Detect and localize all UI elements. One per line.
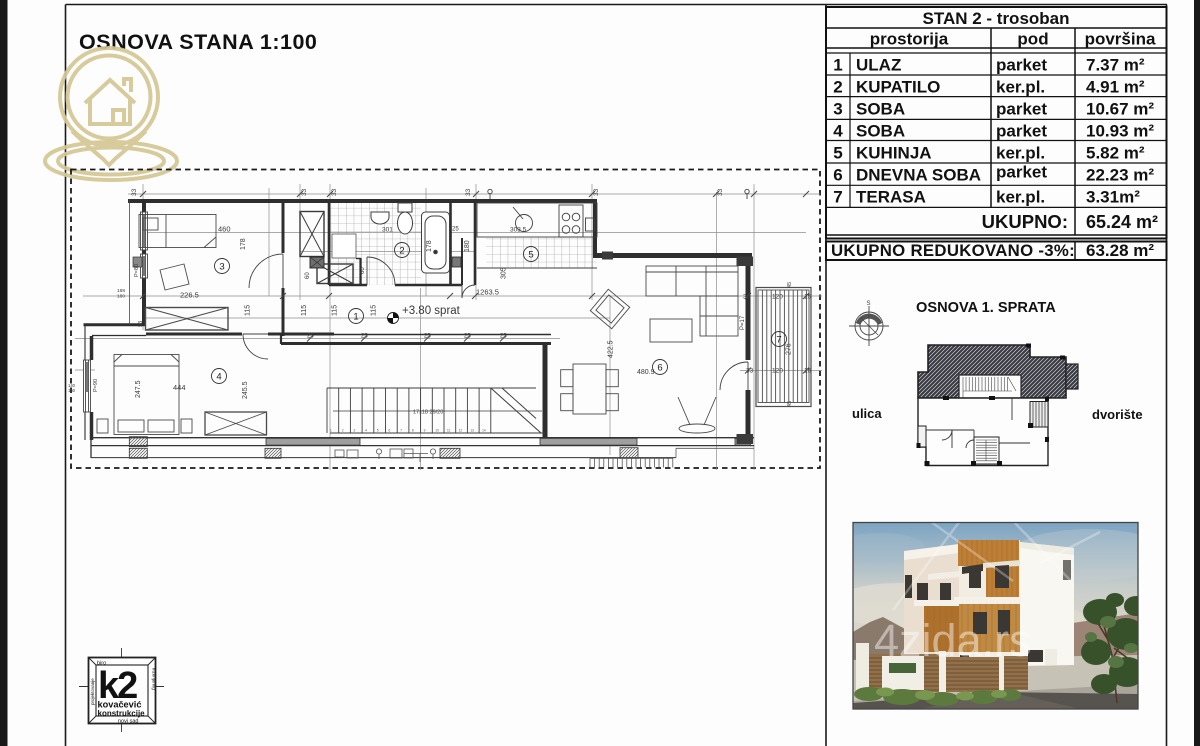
- svg-text:+3.80 sprat: +3.80 sprat: [402, 305, 461, 317]
- svg-text:60: 60: [360, 267, 366, 274]
- svg-text:P=80: P=80: [134, 264, 140, 277]
- svg-text:33: 33: [593, 188, 600, 196]
- svg-text:480.9: 480.9: [637, 369, 655, 376]
- svg-text:SOBA: SOBA: [856, 122, 905, 141]
- svg-text:422.5: 422.5: [608, 340, 615, 358]
- svg-text:33: 33: [131, 188, 138, 196]
- svg-text:25: 25: [464, 334, 471, 340]
- svg-text:parket: parket: [996, 100, 1047, 119]
- svg-text:DNEVNA SOBA: DNEVNA SOBA: [856, 166, 981, 185]
- svg-text:KUHINJA: KUHINJA: [856, 144, 932, 163]
- svg-text:115: 115: [332, 305, 339, 316]
- svg-text:P=17: P=17: [740, 315, 746, 330]
- svg-text:4: 4: [365, 429, 367, 433]
- svg-text:120: 120: [772, 368, 783, 375]
- svg-text:parket: parket: [996, 56, 1047, 75]
- svg-text:12: 12: [459, 429, 463, 433]
- svg-text:33: 33: [465, 188, 472, 196]
- svg-text:S: S: [867, 301, 871, 307]
- svg-text:1: 1: [833, 56, 842, 75]
- svg-text:5: 5: [377, 429, 379, 433]
- svg-text:kovačević: kovačević: [98, 700, 142, 710]
- svg-text:dvorište: dvorište: [1092, 407, 1143, 422]
- svg-text:UKUPNO REDUKOVANO -3%:: UKUPNO REDUKOVANO -3%:: [831, 241, 1075, 260]
- svg-text:305: 305: [501, 267, 508, 279]
- svg-text:2: 2: [399, 246, 404, 257]
- svg-text:ker.pl.: ker.pl.: [996, 144, 1045, 163]
- svg-text:parket: parket: [996, 163, 1047, 182]
- svg-text:7: 7: [833, 188, 842, 207]
- svg-text:inženjering: inženjering: [152, 668, 157, 690]
- svg-text:25: 25: [307, 334, 314, 340]
- svg-text:STAN 2 - trosoban: STAN 2 - trosoban: [922, 9, 1069, 28]
- svg-text:33: 33: [746, 368, 754, 375]
- svg-text:ulica: ulica: [852, 406, 882, 421]
- svg-text:konstrukcije: konstrukcije: [98, 709, 146, 718]
- svg-text:4: 4: [833, 122, 843, 141]
- svg-text:226.5: 226.5: [180, 291, 199, 300]
- svg-text:25: 25: [452, 227, 459, 233]
- svg-text:60: 60: [305, 272, 311, 279]
- svg-text:4.91 m²: 4.91 m²: [1086, 78, 1145, 97]
- svg-text:4zida.rs: 4zida.rs: [874, 615, 1032, 666]
- svg-text:25: 25: [500, 334, 507, 340]
- svg-text:6: 6: [389, 429, 391, 433]
- svg-text:SOBA: SOBA: [856, 100, 905, 119]
- svg-text:9: 9: [424, 429, 426, 433]
- svg-text:7: 7: [400, 429, 402, 433]
- svg-text:188: 188: [117, 288, 125, 294]
- svg-text:15: 15: [804, 294, 812, 301]
- svg-text:115: 115: [301, 305, 308, 316]
- svg-text:ker.pl.: ker.pl.: [996, 188, 1045, 207]
- svg-text:3: 3: [353, 429, 355, 433]
- svg-text:25: 25: [424, 334, 431, 340]
- svg-text:33: 33: [301, 188, 308, 196]
- svg-text:17x18 29/20: 17x18 29/20: [413, 410, 443, 416]
- svg-text:301: 301: [382, 227, 393, 234]
- svg-text:3.31m²: 3.31m²: [1086, 188, 1140, 207]
- svg-text:2: 2: [342, 429, 344, 433]
- svg-text:63.28 m²: 63.28 m²: [1086, 241, 1154, 260]
- svg-text:10.93 m²: 10.93 m²: [1086, 122, 1154, 141]
- svg-text:KUPATILO: KUPATILO: [856, 78, 940, 97]
- svg-text:TERASA: TERASA: [856, 188, 926, 207]
- svg-text:1: 1: [330, 429, 332, 433]
- svg-text:15: 15: [804, 368, 812, 375]
- svg-text:prostorija: prostorija: [870, 30, 949, 49]
- svg-text:22.23 m²: 22.23 m²: [1086, 166, 1154, 185]
- svg-text:OSNOVA STANA 1:100: OSNOVA STANA 1:100: [79, 30, 317, 54]
- svg-text:180: 180: [464, 240, 471, 252]
- svg-text:projektovanje: projektovanje: [90, 678, 95, 705]
- svg-text:444: 444: [173, 383, 186, 392]
- svg-text:303.5: 303.5: [510, 227, 527, 234]
- svg-text:45: 45: [787, 401, 793, 407]
- svg-text:pod: pod: [1017, 30, 1048, 49]
- svg-text:178: 178: [240, 238, 247, 250]
- svg-text:UKUPNO:: UKUPNO:: [982, 211, 1068, 232]
- svg-text:45: 45: [787, 282, 793, 288]
- svg-text:11: 11: [447, 429, 451, 433]
- svg-text:3: 3: [219, 262, 224, 273]
- svg-text:1: 1: [353, 312, 358, 323]
- svg-text:180: 180: [117, 294, 125, 300]
- svg-text:parket: parket: [996, 122, 1047, 141]
- svg-text:65.24 m²: 65.24 m²: [1086, 212, 1158, 232]
- svg-text:površina: površina: [1085, 30, 1156, 49]
- svg-text:OSNOVA 1. SPRATA: OSNOVA 1. SPRATA: [916, 300, 1056, 316]
- svg-text:115: 115: [371, 305, 378, 316]
- svg-text:53: 53: [138, 321, 144, 327]
- svg-text:3: 3: [833, 100, 842, 119]
- svg-text:ker.pl.: ker.pl.: [996, 78, 1045, 97]
- svg-text:13: 13: [470, 429, 474, 433]
- svg-text:10.67 m²: 10.67 m²: [1086, 100, 1154, 119]
- svg-text:178: 178: [426, 240, 433, 252]
- svg-text:115: 115: [245, 305, 252, 316]
- svg-text:5: 5: [833, 144, 842, 163]
- svg-text:14: 14: [482, 429, 486, 433]
- svg-text:5.82 m²: 5.82 m²: [1086, 144, 1145, 163]
- svg-text:247.5: 247.5: [135, 380, 142, 398]
- svg-text:1263.5: 1263.5: [476, 288, 499, 297]
- svg-text:2: 2: [833, 78, 842, 97]
- svg-text:novi sad: novi sad: [118, 719, 139, 725]
- svg-text:7.37 m²: 7.37 m²: [1086, 56, 1145, 75]
- svg-text:276: 276: [786, 343, 793, 355]
- svg-text:33: 33: [717, 188, 724, 196]
- svg-text:33: 33: [743, 294, 751, 301]
- svg-text:25: 25: [361, 334, 368, 340]
- svg-text:5: 5: [528, 250, 533, 261]
- svg-text:245.5: 245.5: [242, 381, 249, 399]
- svg-text:P=90: P=90: [93, 379, 99, 392]
- svg-text:4: 4: [216, 372, 221, 383]
- svg-text:120: 120: [772, 294, 783, 301]
- svg-text:6: 6: [833, 166, 842, 185]
- svg-text:150: 150: [68, 388, 76, 393]
- svg-text:460: 460: [218, 225, 231, 234]
- svg-text:7: 7: [776, 335, 781, 346]
- svg-text:ULAZ: ULAZ: [856, 56, 901, 75]
- svg-text:33: 33: [331, 188, 338, 196]
- svg-text:10: 10: [435, 429, 439, 433]
- svg-text:8: 8: [412, 429, 414, 433]
- svg-text:6: 6: [657, 363, 662, 374]
